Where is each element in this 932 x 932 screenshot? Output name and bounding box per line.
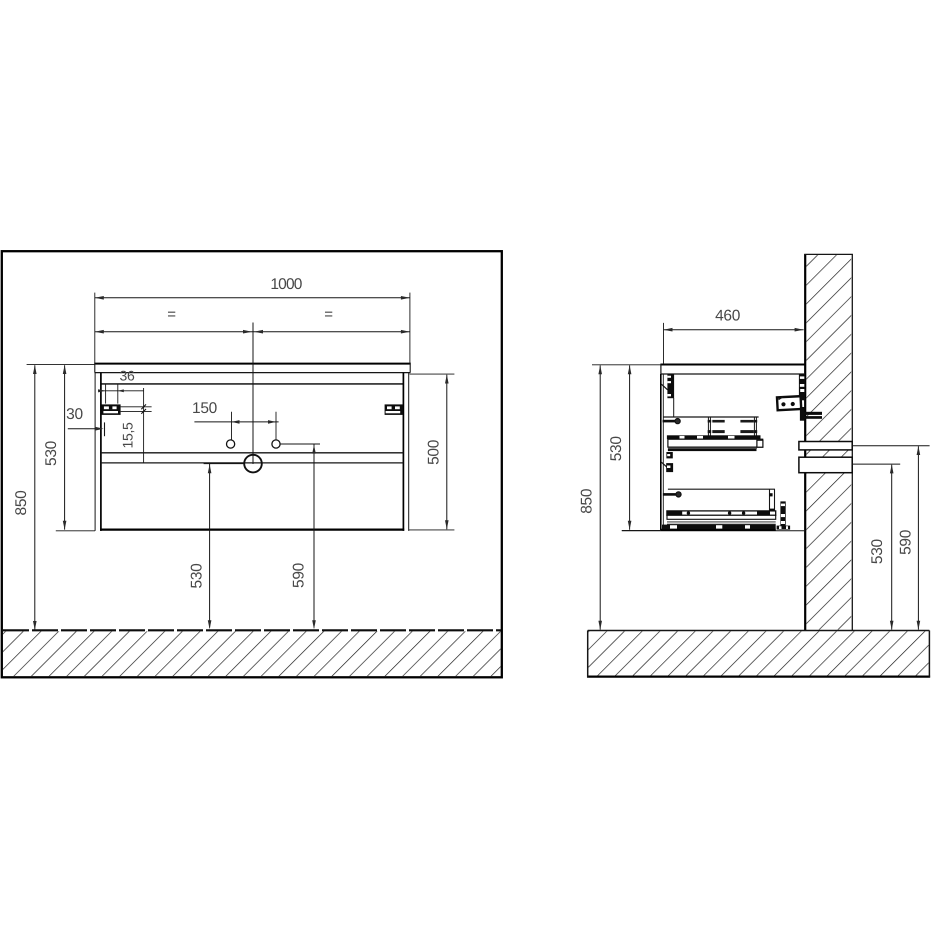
svg-text:30: 30	[66, 406, 83, 423]
svg-text:15,5: 15,5	[120, 422, 136, 449]
svg-text:1000: 1000	[270, 276, 302, 293]
svg-text:=: =	[324, 306, 333, 323]
svg-text:590: 590	[898, 529, 915, 555]
svg-text:530: 530	[869, 538, 886, 564]
svg-text:530: 530	[188, 563, 205, 589]
svg-text:36: 36	[120, 368, 135, 384]
svg-text:530: 530	[43, 440, 60, 466]
svg-text:500: 500	[426, 439, 443, 465]
svg-text:850: 850	[13, 490, 30, 516]
svg-text:150: 150	[192, 400, 218, 417]
svg-text:460: 460	[715, 308, 741, 325]
svg-text:590: 590	[290, 562, 307, 588]
svg-text:=: =	[167, 306, 176, 323]
svg-text:530: 530	[608, 436, 625, 462]
svg-text:850: 850	[578, 488, 595, 514]
